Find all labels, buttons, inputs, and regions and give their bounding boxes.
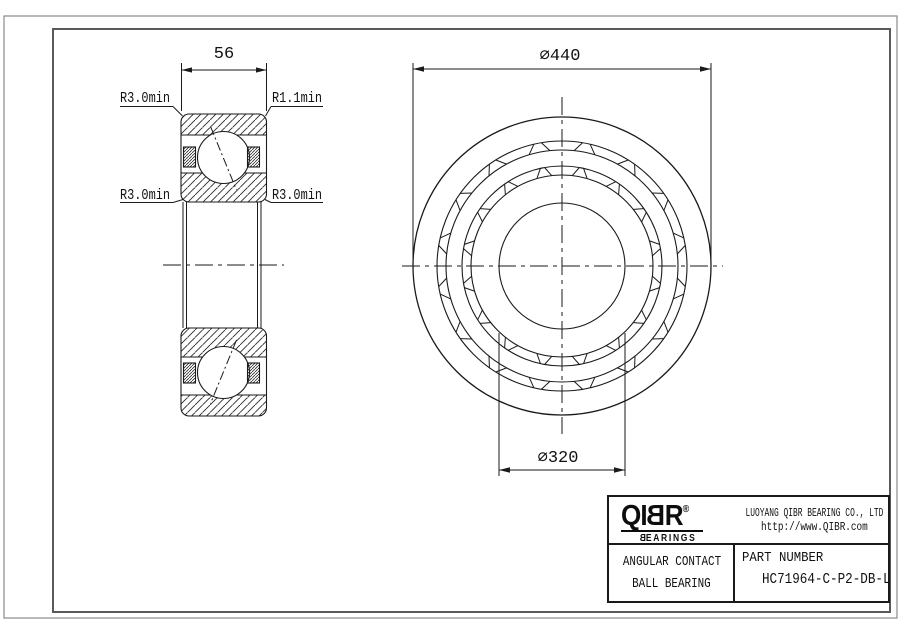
logo-wordmark: QIBR® — [621, 497, 701, 529]
part-number-label: PART NUMBER — [742, 550, 900, 566]
fillet-label-top-left: R3.0min — [120, 90, 170, 107]
cage-left-b — [184, 363, 196, 383]
dim-text-od: ⌀440 — [540, 47, 581, 66]
product-type-cell: ANGULAR CONTACT BALL BEARING — [609, 545, 735, 601]
dim-text-width: 56 — [214, 45, 234, 64]
title-block-header-row: QIBR® BEARINGS LUOYANG QIBR BEARING CO.,… — [609, 497, 888, 545]
cage-left — [184, 147, 196, 167]
cage-right-b — [248, 363, 260, 383]
registered-mark: ® — [683, 504, 690, 515]
company-url: http://www.QIBR.com — [710, 520, 900, 535]
company-info: LUOYANG QIBR BEARING CO., LTD http://www… — [710, 506, 900, 535]
fillet-label-bottom-left: R3.0min — [120, 187, 170, 204]
title-block-body-row: ANGULAR CONTACT BALL BEARING PART NUMBER… — [609, 545, 888, 601]
cage-right — [248, 147, 260, 167]
logo-part-pre: QI — [621, 500, 647, 532]
ball-top — [198, 132, 250, 184]
brand-logo: QIBR® BEARINGS — [609, 497, 710, 544]
fillet-label-bottom-right: R3.0min — [272, 187, 322, 204]
part-number-cell: PART NUMBER HC71964-C-P2-DB-L — [735, 545, 900, 601]
company-name: LUOYANG QIBR BEARING CO., LTD — [710, 506, 900, 520]
logo-part-post: R — [665, 500, 683, 532]
dim-text-bore: ⌀320 — [538, 449, 579, 468]
product-type-line1: ANGULAR CONTACT — [609, 551, 733, 573]
front-view — [402, 97, 723, 434]
dim-width-56 — [182, 63, 267, 111]
drawing-sheet: 56 ⌀440 ⌀320 R3.0min R1.1min R3.0min R3.… — [0, 0, 900, 636]
part-number-value: HC71964-C-P2-DB-L — [742, 571, 900, 588]
product-type-line2: BALL BEARING — [609, 573, 733, 595]
logo-part-flipped-b: B — [647, 503, 665, 529]
logo-sub-flipped-b: B — [638, 533, 646, 544]
title-block: QIBR® BEARINGS LUOYANG QIBR BEARING CO.,… — [607, 495, 890, 603]
logo-subtitle: BEARINGS — [621, 533, 696, 544]
logo-sub-rest: EARINGS — [646, 533, 697, 544]
fillet-label-top-right: R1.1min — [272, 90, 322, 107]
section-top — [181, 114, 267, 202]
section-bottom — [181, 328, 267, 416]
side-view — [163, 114, 284, 416]
